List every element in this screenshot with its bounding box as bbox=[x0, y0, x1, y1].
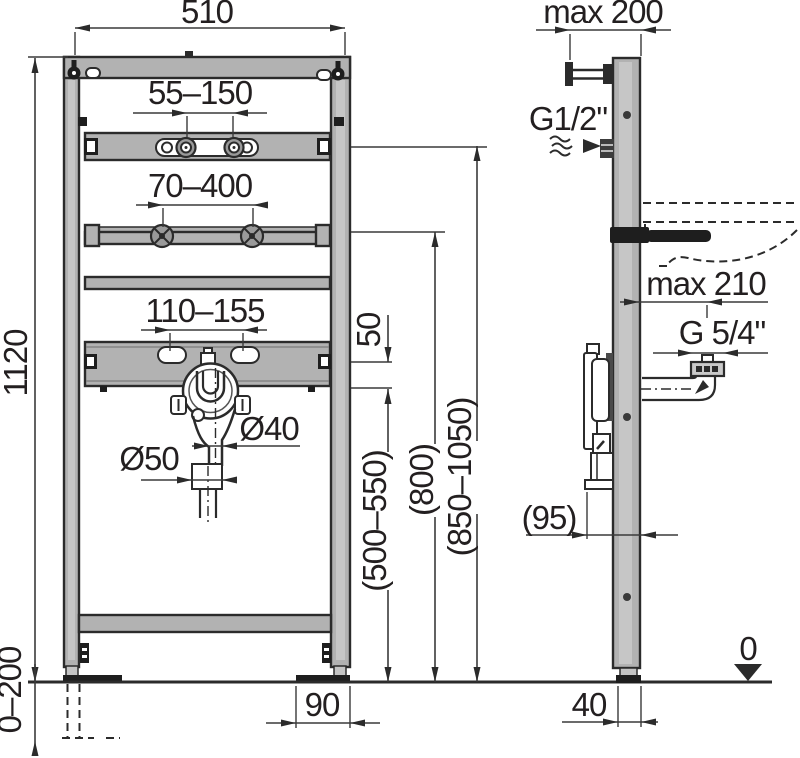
dim-drain-pipe-diameter: Ø40 bbox=[239, 410, 299, 447]
dim-frame-height: 1120 bbox=[0, 329, 34, 397]
drain-socket bbox=[192, 464, 222, 489]
water-flow-arrow bbox=[550, 137, 601, 156]
rail-screw-right bbox=[241, 225, 263, 247]
dim-wall-offset: max 200 bbox=[543, 0, 663, 30]
right-post-highlight bbox=[336, 80, 345, 660]
side-view bbox=[550, 58, 797, 683]
side-view-dimensions: max 200 G1/2" max 210 G 5/4" (95) 40 0 bbox=[522, 0, 768, 727]
leg-extension-dashed bbox=[62, 684, 120, 738]
profile-foot-plate bbox=[616, 675, 641, 683]
left-leg-stem bbox=[66, 666, 78, 676]
dim-drain-height: (500–550) bbox=[356, 450, 393, 591]
rail-screw-left bbox=[151, 225, 173, 247]
post-clamp-right bbox=[322, 643, 331, 663]
dim-frame-width: 510 bbox=[181, 0, 234, 30]
profile-hole-top bbox=[623, 111, 631, 119]
dim-offset: 50 bbox=[350, 312, 387, 347]
dim-drain-socket-diameter: Ø50 bbox=[119, 440, 179, 477]
technical-drawing: 510 1120 0–200 55–150 70–400 110–155 bbox=[0, 0, 800, 758]
installation-frame-diagram: 510 1120 0–200 55–150 70–400 110–155 bbox=[0, 0, 800, 758]
profile-hole-bottom bbox=[623, 593, 631, 601]
right-leg-stem bbox=[334, 666, 346, 676]
post-clamp-left bbox=[80, 643, 89, 663]
profile-highlight bbox=[619, 62, 632, 664]
dim-foot-length: 90 bbox=[305, 686, 340, 723]
water-inlet-fitting bbox=[600, 139, 614, 158]
dim-bracket-depth: (95) bbox=[522, 499, 577, 536]
dim-basin-bolt-spacing: 110–155 bbox=[145, 292, 264, 329]
faucet bbox=[610, 227, 711, 243]
side-bracket bbox=[584, 344, 613, 489]
left-post-highlight bbox=[68, 80, 75, 660]
tap-rail bbox=[84, 133, 331, 160]
tap-fitting-left bbox=[177, 138, 196, 157]
adjustable-rail bbox=[85, 225, 330, 247]
dim-profile-depth: 40 bbox=[572, 686, 607, 723]
label-drain-thread: G 5/4" bbox=[679, 314, 766, 351]
label-floor-level: 0 bbox=[739, 630, 757, 667]
drain-pipe bbox=[193, 416, 209, 466]
dim-tap-spacing: 55–150 bbox=[148, 74, 253, 111]
basin-bolt-slot-left bbox=[158, 347, 186, 363]
tap-fitting-right bbox=[225, 138, 244, 157]
top-slot-right bbox=[317, 70, 331, 80]
top-slot-left bbox=[86, 68, 100, 78]
front-view-frame bbox=[62, 51, 350, 738]
top-bar-tab bbox=[185, 51, 193, 57]
post-clip-right bbox=[334, 117, 344, 126]
dim-basin-depth: max 210 bbox=[646, 265, 766, 302]
wall-anchor bbox=[565, 62, 614, 86]
drain-elbow bbox=[641, 355, 724, 400]
dim-leg-extension: 0–200 bbox=[0, 646, 28, 733]
middle-crossbar bbox=[85, 277, 330, 289]
profile-hole-middle bbox=[623, 413, 631, 421]
basin-bolt-slot-right bbox=[231, 347, 259, 363]
siphon-body bbox=[183, 364, 238, 419]
post-clip-left bbox=[78, 117, 87, 126]
bottom-crossbar bbox=[79, 615, 331, 632]
dim-tap-rail-height: (850–1050) bbox=[441, 398, 478, 557]
dim-crossbar-spacing: 70–400 bbox=[148, 167, 253, 204]
label-water-inlet: G1/2" bbox=[529, 100, 608, 137]
dim-crossbar-height: (800) bbox=[403, 444, 440, 516]
